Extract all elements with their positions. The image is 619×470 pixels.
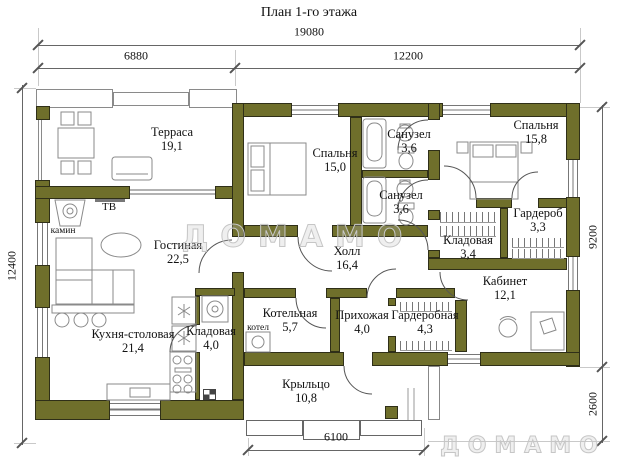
room-label-hall: Холл16,4 — [334, 244, 361, 272]
wall — [500, 208, 508, 258]
fireplace-icon — [55, 200, 85, 226]
wall — [428, 210, 440, 220]
room-label-dressing: Гардеробная4,3 — [391, 308, 458, 336]
porch-step — [246, 420, 303, 436]
wall — [244, 352, 344, 366]
room-label-living: Гостиная22,5 — [154, 238, 202, 266]
wall — [362, 170, 428, 178]
bed-icon — [457, 142, 532, 199]
door-arc — [512, 172, 538, 198]
room-label-wardrobe: Гардероб3,3 — [513, 206, 562, 234]
wall — [476, 198, 512, 208]
room-label-porch: Крыльцо10,8 — [282, 377, 330, 405]
porch-rail-icon — [408, 388, 414, 420]
dim-label-right-porch: 2600 — [586, 392, 601, 416]
room-label-boiler: Котельная5,7 — [263, 306, 318, 334]
bed-icon — [248, 143, 306, 195]
terrace-sofa-icon — [112, 157, 152, 180]
dim-label-left: 12400 — [5, 251, 20, 281]
wall — [388, 298, 396, 306]
dim-label-top-right: 12200 — [393, 49, 423, 64]
terrace-post — [36, 106, 50, 120]
room-label-study: Кабинет12,1 — [483, 274, 527, 302]
window — [37, 223, 48, 265]
wall — [372, 352, 448, 366]
extension-line — [14, 88, 36, 89]
bathtub-icon — [363, 119, 386, 168]
window — [110, 403, 160, 416]
boiler-icon — [246, 332, 270, 352]
dimension-line — [602, 105, 603, 443]
wall — [195, 352, 200, 400]
clothes-rack — [512, 249, 564, 259]
dim-label-bottom-porch: 6100 — [324, 430, 348, 445]
terrace-door-icon — [130, 190, 215, 194]
wall — [35, 400, 110, 420]
wall — [195, 296, 200, 325]
wall — [244, 288, 296, 298]
page-title: План 1-го этажа — [261, 5, 357, 21]
room-label-kitchen: Кухня-столовая21,4 — [92, 327, 175, 355]
terrace-dining-set-icon — [58, 112, 94, 174]
extension-line — [38, 28, 39, 86]
porch-side-screen — [428, 366, 440, 420]
terrace-parapet — [189, 89, 237, 108]
door-arc — [298, 237, 332, 271]
wall — [350, 117, 362, 237]
office-chair-icon — [499, 317, 517, 337]
room-label-bathroom-1: Санузел3,6 — [387, 127, 431, 155]
door-arc — [367, 269, 396, 298]
wall — [35, 265, 50, 308]
porch-column — [385, 406, 398, 419]
extension-line — [580, 107, 610, 108]
window — [568, 257, 578, 290]
wall — [428, 250, 440, 258]
bar-stools-icon — [55, 313, 106, 327]
wall — [195, 288, 235, 296]
extension-line — [424, 428, 425, 456]
room-label-bedroom-2: Спальня15,8 — [513, 118, 558, 146]
room-label-closet: Кладовая3,4 — [443, 233, 493, 261]
wall — [160, 400, 244, 420]
dim-label-top-total: 19080 — [294, 25, 324, 40]
clothes-rack — [440, 212, 496, 223]
wall — [396, 288, 455, 298]
tv-label: ТВ — [102, 201, 116, 213]
desk-icon — [531, 312, 564, 350]
window — [448, 354, 480, 364]
door-arc — [344, 366, 372, 394]
dimension-line — [248, 450, 424, 451]
room-label-entry: Прихожая4,0 — [335, 308, 389, 336]
wall — [232, 103, 244, 237]
kitchen-counter-icon — [107, 352, 196, 400]
dim-label-right-main: 9200 — [586, 225, 601, 249]
dimension-line — [38, 68, 580, 69]
wall — [326, 288, 367, 298]
room-label-pantry: Кладовая4,0 — [186, 324, 236, 352]
window — [443, 105, 490, 115]
coffee-table-icon — [101, 233, 141, 257]
bar-counter-icon — [52, 305, 134, 313]
room-label-bathroom-2: Санузел3,6 — [379, 188, 423, 216]
dim-label-top-left: 6880 — [124, 49, 148, 64]
door-arc — [199, 240, 232, 273]
porch-step — [360, 420, 422, 436]
wall — [566, 197, 580, 257]
wall — [428, 103, 440, 120]
wall — [566, 103, 580, 160]
washing-machine-icon — [202, 296, 228, 322]
room-label-terrace: Терраса19,1 — [151, 125, 193, 153]
extension-line — [14, 443, 36, 444]
floor-plan: План 1-го этажа 19080 6880 12200 12400 9… — [0, 0, 619, 470]
door-arc — [444, 166, 476, 198]
window — [568, 160, 578, 197]
terrace-parapet — [113, 92, 189, 106]
extension-line — [428, 441, 610, 442]
floor-drain — [203, 389, 216, 400]
fireplace-label: камин — [51, 226, 76, 236]
wall — [480, 352, 580, 366]
dimension-line — [38, 45, 580, 46]
dimension-line — [22, 85, 23, 445]
watermark-corner: ДОМАМО — [440, 434, 606, 459]
window — [37, 308, 48, 357]
wall — [244, 225, 298, 237]
clothes-rack — [512, 238, 564, 248]
room-label-bedroom-1: Спальня15,0 — [312, 146, 357, 174]
wall — [388, 336, 396, 352]
boiler-label: котел — [247, 323, 269, 333]
clothes-rack — [400, 341, 452, 351]
wall — [332, 225, 428, 237]
living-sofa-icon — [56, 238, 134, 304]
extension-line — [580, 367, 610, 368]
wall — [35, 186, 130, 199]
window — [292, 105, 338, 115]
